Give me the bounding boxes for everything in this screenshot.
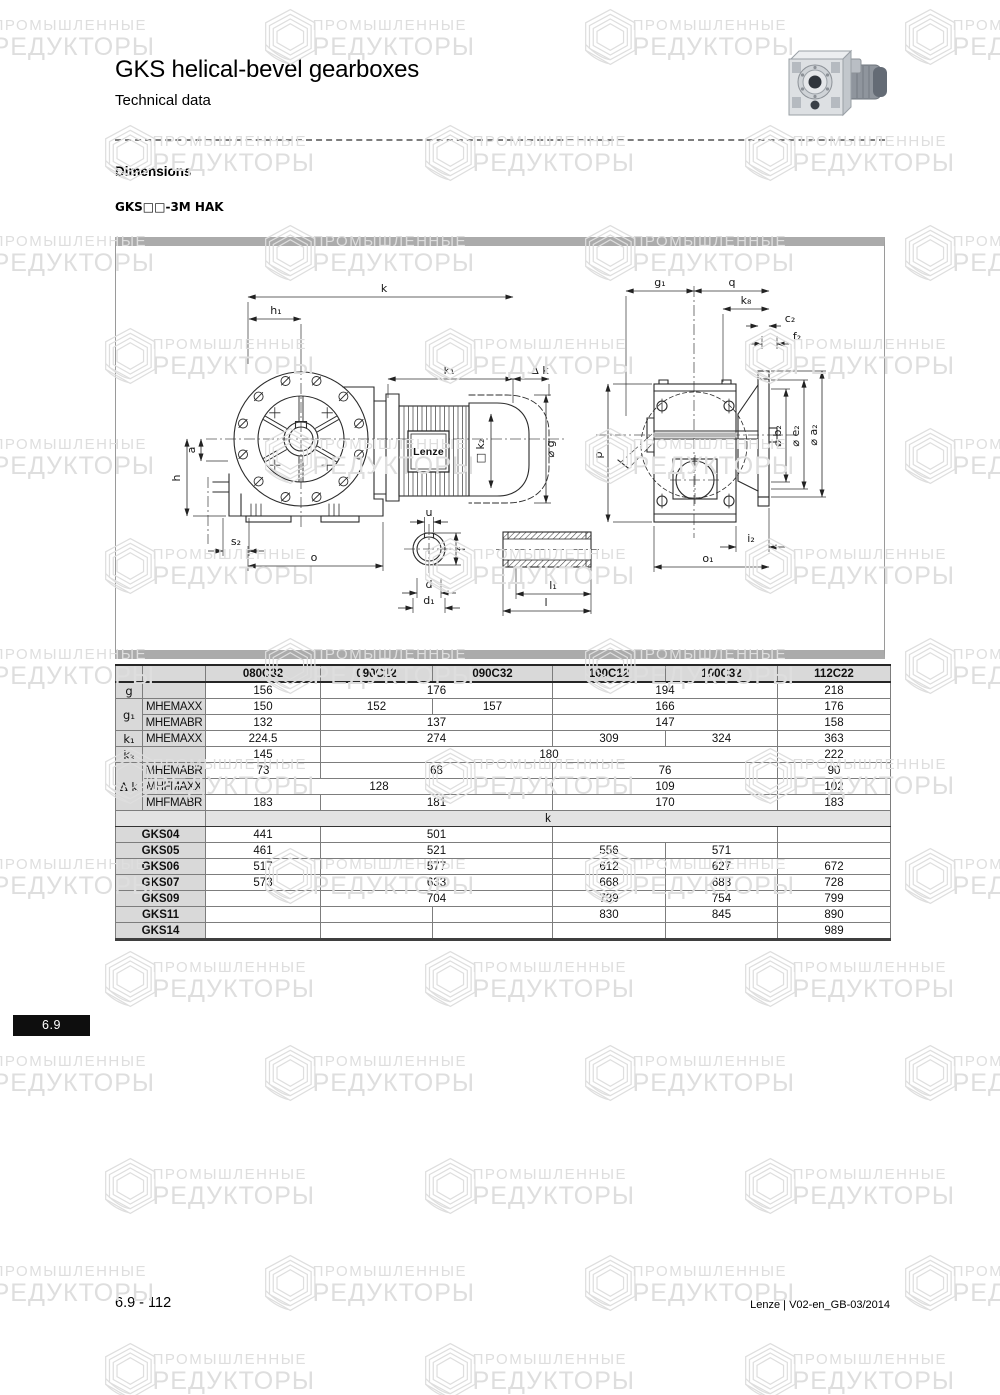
table-cell xyxy=(553,827,778,843)
watermark-line2: РЕДУКТОРЫ xyxy=(793,150,955,176)
table-cell xyxy=(143,747,206,763)
watermark-line2: РЕДУКТОРЫ xyxy=(0,1070,155,1096)
watermark-line1: ПРОМЫШЛЕННЫЕ xyxy=(953,1264,1000,1280)
column-header: 100C32 xyxy=(666,665,778,682)
watermark-text: ПРОМЫШЛЕННЫЕ РЕДУКТОРЫ xyxy=(0,18,155,60)
column-header: 080C32 xyxy=(206,665,321,682)
watermark-line1: ПРОМЫШЛЕННЫЕ xyxy=(953,1054,1000,1070)
table-cell: MHFMABR xyxy=(143,795,206,811)
watermark: ПРОМЫШЛЕННЫЕ РЕДУКТОРЫ xyxy=(900,845,1000,915)
watermark-line1: ПРОМЫШЛЕННЫЕ xyxy=(473,1352,635,1368)
dim-label-c2: c₂ xyxy=(785,312,795,325)
lenze-logo-text: Lenze xyxy=(413,446,444,458)
table-cell: 573 xyxy=(206,875,321,891)
table-cell: 830 xyxy=(553,907,666,923)
watermark-logo-icon xyxy=(740,948,801,1010)
table-cell: 180 xyxy=(321,747,778,763)
dim-label-a2: ⌀ a₂ xyxy=(807,424,820,445)
table-cell: 612 xyxy=(553,859,666,875)
watermark-line1: ПРОМЫШЛЕННЫЕ xyxy=(0,1054,155,1070)
watermark-text: ПРОМЫШЛЕННЫЕ РЕДУКТОРЫ xyxy=(0,1054,155,1096)
table-cell xyxy=(433,907,553,923)
watermark-line2: РЕДУКТОРЫ xyxy=(793,1183,955,1209)
watermark-logo-icon xyxy=(900,1252,961,1314)
table-cell: 461 xyxy=(206,843,321,859)
table-cell: MHEMABR xyxy=(143,715,206,731)
table-cell: 517 xyxy=(206,859,321,875)
table-cell: 739 xyxy=(553,891,666,907)
watermark-line2: РЕДУКТОРЫ xyxy=(633,1070,795,1096)
watermark-logo-icon xyxy=(100,1340,161,1395)
watermark-line2: РЕДУКТОРЫ xyxy=(953,873,1000,899)
watermark: ПРОМЫШЛЕННЫЕ РЕДУКТОРЫ xyxy=(260,1252,475,1322)
watermark-text: ПРОМЫШЛЕННЫЕ РЕДУКТОРЫ xyxy=(473,1352,635,1394)
dim-label-b2: ⌀ b₂ xyxy=(771,425,784,447)
watermark-line2: РЕДУКТОРЫ xyxy=(953,453,1000,479)
table-cell: 224.5 xyxy=(206,731,321,747)
watermark-line2: РЕДУКТОРЫ xyxy=(153,1368,315,1394)
side-view xyxy=(618,371,777,522)
table-cell: 109 xyxy=(553,779,778,795)
watermark-logo-icon xyxy=(0,1252,1,1314)
dim-label-g-dia: ⌀ g xyxy=(544,440,557,457)
watermark-line1: ПРОМЫШЛЕННЫЕ xyxy=(313,1054,475,1070)
watermark-text: ПРОМЫШЛЕННЫЕ РЕДУКТОРЫ xyxy=(953,647,1000,689)
dim-label-e2: ⌀ e₂ xyxy=(789,425,802,446)
table-cell xyxy=(778,827,891,843)
watermark-logo-icon xyxy=(740,122,801,184)
watermark-text: ПРОМЫШЛЕННЫЕ РЕДУКТОРЫ xyxy=(313,1264,475,1306)
watermark-line1: ПРОМЫШЛЕННЫЕ xyxy=(793,1352,955,1368)
table-cell: MHEMABR xyxy=(143,763,206,779)
row-label: GKS05 xyxy=(116,843,206,859)
dim-label-o1: o₁ xyxy=(702,552,713,565)
dim-label-k1: k₁ xyxy=(444,364,455,377)
table-cell: 728 xyxy=(778,875,891,891)
table-cell: g₁ xyxy=(116,699,143,731)
watermark: ПРОМЫШЛЕННЫЕ РЕДУКТОРЫ xyxy=(900,6,1000,76)
dim-label-o: o xyxy=(311,551,318,564)
watermark-text: ПРОМЫШЛЕННЫЕ РЕДУКТОРЫ xyxy=(953,437,1000,479)
watermark-text: ПРОМЫШЛЕННЫЕ РЕДУКТОРЫ xyxy=(313,1054,475,1096)
watermark-line1: ПРОМЫШЛЕННЫЕ xyxy=(953,647,1000,663)
watermark-line1: ПРОМЫШЛЕННЫЕ xyxy=(153,1167,315,1183)
watermark-text: ПРОМЫШЛЕННЫЕ РЕДУКТОРЫ xyxy=(953,1264,1000,1306)
table-cell: 132 xyxy=(206,715,321,731)
table-cell: k₂ xyxy=(116,747,143,763)
watermark-line2: РЕДУКТОРЫ xyxy=(793,1368,955,1394)
watermark-line1: ПРОМЫШЛЕННЫЕ xyxy=(153,960,315,976)
dim-label-q: q xyxy=(729,276,736,289)
watermark-line1: ПРОМЫШЛЕННЫЕ xyxy=(953,18,1000,34)
watermark-logo-icon xyxy=(580,1042,641,1104)
table-cell xyxy=(553,923,666,940)
table-cell: 90 xyxy=(778,763,891,779)
watermark-logo-icon xyxy=(260,1252,321,1314)
watermark-line1: ПРОМЫШЛЕННЫЕ xyxy=(633,18,795,34)
table-cell: 222 xyxy=(778,747,891,763)
watermark-text: ПРОМЫШЛЕННЫЕ РЕДУКТОРЫ xyxy=(953,234,1000,276)
watermark-text: ПРОМЫШЛЕННЫЕ РЕДУКТОРЫ xyxy=(313,18,475,60)
table-cell: 176 xyxy=(778,699,891,715)
table-cell xyxy=(206,923,321,940)
row-label: GKS11 xyxy=(116,907,206,923)
watermark-logo-icon xyxy=(740,1155,801,1217)
table-cell: 68 xyxy=(321,763,553,779)
table-cell: 577 xyxy=(321,859,553,875)
watermark-line1: ПРОМЫШЛЕННЫЕ xyxy=(793,960,955,976)
table-cell: 633 xyxy=(321,875,553,891)
watermark-line2: РЕДУКТОРЫ xyxy=(953,1070,1000,1096)
gearbox-product-image xyxy=(783,45,893,123)
table-cell: 147 xyxy=(553,715,778,731)
watermark-line2: РЕДУКТОРЫ xyxy=(313,1280,475,1306)
watermark: ПРОМЫШЛЕННЫЕ РЕДУКТОРЫ xyxy=(100,1340,315,1395)
watermark-line2: РЕДУКТОРЫ xyxy=(473,150,635,176)
dimensions-table: 080C32090C12090C32100C12100C32112C22g156… xyxy=(115,664,891,941)
technical-drawing: k h₁ k₁ Δ k ⌀ g □ k₂ Lenze a h s₂ o u f … xyxy=(116,246,884,650)
table-cell: 181 xyxy=(321,795,553,811)
dim-label-h: h xyxy=(170,474,183,481)
dim-label-d: d xyxy=(426,578,433,591)
dim-label-p: p xyxy=(592,451,605,458)
watermark-logo-icon xyxy=(0,222,1,284)
watermark: ПРОМЫШЛЕННЫЕ РЕДУКТОРЫ xyxy=(260,1042,475,1112)
dim-label-g1: g₁ xyxy=(654,276,665,289)
table-cell: 890 xyxy=(778,907,891,923)
page-title: GKS helical-bevel gearboxes xyxy=(115,56,419,84)
dim-label-i2: i₂ xyxy=(747,532,754,545)
watermark-logo-icon xyxy=(900,845,961,907)
table-cell: 166 xyxy=(553,699,778,715)
watermark-text: ПРОМЫШЛЕННЫЕ РЕДУКТОРЫ xyxy=(633,18,795,60)
table-cell: Δ k xyxy=(116,763,143,811)
watermark: ПРОМЫШЛЕННЫЕ РЕДУКТОРЫ xyxy=(100,122,315,192)
watermark-text: ПРОМЫШЛЕННЫЕ РЕДУКТОРЫ xyxy=(793,1167,955,1209)
watermark-logo-icon xyxy=(420,1155,481,1217)
watermark-line1: ПРОМЫШЛЕННЫЕ xyxy=(0,1264,155,1280)
table-cell xyxy=(321,923,433,940)
watermark-logo-icon xyxy=(0,1042,1,1104)
watermark-logo-icon xyxy=(900,1042,961,1104)
watermark-line1: ПРОМЫШЛЕННЫЕ xyxy=(473,134,635,150)
dim-label-h1: h₁ xyxy=(270,304,281,317)
watermark-logo-icon xyxy=(0,6,1,68)
table-cell xyxy=(433,923,553,940)
watermark: ПРОМЫШЛЕННЫЕ РЕДУКТОРЫ xyxy=(900,425,1000,495)
table-cell: MHEMAXX xyxy=(143,699,206,715)
table-cell: 183 xyxy=(778,795,891,811)
table-cell xyxy=(206,907,321,923)
column-header: 090C32 xyxy=(433,665,553,682)
table-cell: 170 xyxy=(553,795,778,811)
watermark-text: ПРОМЫШЛЕННЫЕ РЕДУКТОРЫ xyxy=(153,960,315,1002)
section-badge: 6.9 xyxy=(13,1015,90,1036)
watermark: ПРОМЫШЛЕННЫЕ РЕДУКТОРЫ xyxy=(580,6,795,76)
table-cell: 145 xyxy=(206,747,321,763)
watermark: ПРОМЫШЛЕННЫЕ РЕДУКТОРЫ xyxy=(420,1340,635,1395)
dim-label-u: u xyxy=(426,506,433,519)
watermark-logo-icon xyxy=(420,948,481,1010)
centerlines xyxy=(206,286,796,574)
catalog-page: GKS helical-bevel gearboxes Technical da… xyxy=(0,0,1000,1395)
watermark-line2: РЕДУКТОРЫ xyxy=(793,976,955,1002)
watermark-logo-icon xyxy=(100,1155,161,1217)
watermark: ПРОМЫШЛЕННЫЕ РЕДУКТОРЫ xyxy=(0,1252,155,1322)
table-cell: 668 xyxy=(553,875,666,891)
watermark-line1: ПРОМЫШЛЕННЫЕ xyxy=(953,234,1000,250)
watermark-logo-icon xyxy=(420,1340,481,1395)
dim-label-f: f xyxy=(455,546,468,551)
watermark: ПРОМЫШЛЕННЫЕ РЕДУКТОРЫ xyxy=(0,1042,155,1112)
variant-label: GKS□□-3M HAK xyxy=(115,200,224,214)
watermark-line1: ПРОМЫШЛЕННЫЕ xyxy=(953,857,1000,873)
table-cell: 274 xyxy=(321,731,553,747)
watermark-line2: РЕДУКТОРЫ xyxy=(153,1183,315,1209)
table-cell: MHFMAXX xyxy=(143,779,206,795)
watermark-line2: РЕДУКТОРЫ xyxy=(953,34,1000,60)
row-label: GKS09 xyxy=(116,891,206,907)
row-label: GKS06 xyxy=(116,859,206,875)
watermark-logo-icon xyxy=(260,1042,321,1104)
table-cell: 76 xyxy=(553,763,778,779)
watermark-logo-icon xyxy=(900,425,961,487)
watermark-logo-icon xyxy=(900,6,961,68)
column-header: 112C22 xyxy=(778,665,891,682)
table-cell: 157 xyxy=(433,699,553,715)
column-header: 090C12 xyxy=(321,665,433,682)
table-cell: k₁ xyxy=(116,731,143,747)
table-cell: 128 xyxy=(206,779,553,795)
watermark-line1: ПРОМЫШЛЕННЫЕ xyxy=(473,960,635,976)
watermark-line1: ПРОМЫШЛЕННЫЕ xyxy=(633,1264,795,1280)
watermark-line1: ПРОМЫШЛЕННЫЕ xyxy=(313,18,475,34)
table-cell: 150 xyxy=(206,699,321,715)
watermark-text: ПРОМЫШЛЕННЫЕ РЕДУКТОРЫ xyxy=(473,960,635,1002)
table-cell: 309 xyxy=(553,731,666,747)
watermark-line2: РЕДУКТОРЫ xyxy=(313,1070,475,1096)
section-heading: Dimensions xyxy=(115,164,192,179)
table-cell: 989 xyxy=(778,923,891,940)
table-cell: 627 xyxy=(666,859,778,875)
table-cell: 102 xyxy=(778,779,891,795)
watermark-text: ПРОМЫШЛЕННЫЕ РЕДУКТОРЫ xyxy=(473,1167,635,1209)
watermark-line1: ПРОМЫШЛЕННЫЕ xyxy=(0,18,155,34)
watermark-line2: РЕДУКТОРЫ xyxy=(953,1280,1000,1306)
row-label: GKS07 xyxy=(116,875,206,891)
table-cell: 501 xyxy=(321,827,553,843)
table-cell: 152 xyxy=(321,699,433,715)
table-cell xyxy=(321,907,433,923)
watermark-line1: ПРОМЫШЛЕННЫЕ xyxy=(953,437,1000,453)
watermark-line1: ПРОМЫШЛЕННЫЕ xyxy=(473,1167,635,1183)
table-cell: 683 xyxy=(666,875,778,891)
watermark-line2: РЕДУКТОРЫ xyxy=(953,250,1000,276)
watermark-line2: РЕДУКТОРЫ xyxy=(473,1368,635,1394)
watermark-text: ПРОМЫШЛЕННЫЕ РЕДУКТОРЫ xyxy=(153,1352,315,1394)
table-cell: 521 xyxy=(321,843,553,859)
watermark-logo-icon xyxy=(420,122,481,184)
column-header xyxy=(116,665,143,682)
watermark-line2: РЕДУКТОРЫ xyxy=(633,34,795,60)
watermark-line1: ПРОМЫШЛЕННЫЕ xyxy=(153,134,315,150)
watermark-logo-icon xyxy=(900,222,961,284)
table-cell xyxy=(666,923,778,940)
column-header xyxy=(143,665,206,682)
watermark: ПРОМЫШЛЕННЫЕ РЕДУКТОРЫ xyxy=(580,1252,795,1322)
drawing-frame: k h₁ k₁ Δ k ⌀ g □ k₂ Lenze a h s₂ o u f … xyxy=(115,237,885,659)
watermark: ПРОМЫШЛЕННЫЕ РЕДУКТОРЫ xyxy=(420,948,635,1018)
watermark-logo-icon xyxy=(740,1340,801,1395)
watermark: ПРОМЫШЛЕННЫЕ РЕДУКТОРЫ xyxy=(900,635,1000,705)
column-header: 100C12 xyxy=(553,665,666,682)
page-subtitle: Technical data xyxy=(115,92,211,109)
gearbox-housing-shape xyxy=(789,51,851,115)
table-cell: 704 xyxy=(321,891,553,907)
watermark-line1: ПРОМЫШЛЕННЫЕ xyxy=(153,1352,315,1368)
watermark-text: ПРОМЫШЛЕННЫЕ РЕДУКТОРЫ xyxy=(793,1352,955,1394)
watermark: ПРОМЫШЛЕННЫЕ РЕДУКТОРЫ xyxy=(740,122,955,192)
dim-label-l1: l₁ xyxy=(549,579,556,592)
table-cell: 571 xyxy=(666,843,778,859)
watermark-logo-icon xyxy=(100,948,161,1010)
table-cell: 799 xyxy=(778,891,891,907)
table-cell xyxy=(778,843,891,859)
table-cell: 672 xyxy=(778,859,891,875)
dim-label-s2: s₂ xyxy=(231,535,241,548)
dim-label-f2: f₂ xyxy=(793,330,801,343)
watermark-logo-icon xyxy=(900,635,961,697)
watermark-text: ПРОМЫШЛЕННЫЕ РЕДУКТОРЫ xyxy=(953,1054,1000,1096)
row-label: GKS14 xyxy=(116,923,206,940)
dashed-divider xyxy=(115,139,885,141)
table-cell: MHEMAXX xyxy=(143,731,206,747)
row-label: GKS04 xyxy=(116,827,206,843)
table-cell: g xyxy=(116,682,143,699)
watermark: ПРОМЫШЛЕННЫЕ РЕДУКТОРЫ xyxy=(420,122,635,192)
table-cell: 441 xyxy=(206,827,321,843)
watermark: ПРОМЫШЛЕННЫЕ РЕДУКТОРЫ xyxy=(100,948,315,1018)
footer-page-number: 6.9 - 112 xyxy=(115,1295,171,1311)
table-cell: 73 xyxy=(206,763,321,779)
dim-label-k: k xyxy=(381,282,388,295)
watermark: ПРОМЫШЛЕННЫЕ РЕДУКТОРЫ xyxy=(740,1155,955,1225)
watermark-logo-icon xyxy=(0,845,1,907)
watermark: ПРОМЫШЛЕННЫЕ РЕДУКТОРЫ xyxy=(900,222,1000,292)
table-cell: 324 xyxy=(666,731,778,747)
watermark: ПРОМЫШЛЕННЫЕ РЕДУКТОРЫ xyxy=(580,1042,795,1112)
front-view xyxy=(213,372,591,567)
table-cell xyxy=(143,682,206,699)
watermark: ПРОМЫШЛЕННЫЕ РЕДУКТОРЫ xyxy=(900,1252,1000,1322)
watermark-text: ПРОМЫШЛЕННЫЕ РЕДУКТОРЫ xyxy=(953,857,1000,899)
watermark-line1: ПРОМЫШЛЕННЫЕ xyxy=(793,1167,955,1183)
watermark-logo-icon xyxy=(580,6,641,68)
dim-label-k2: □ k₂ xyxy=(474,439,487,464)
dim-label-dk: Δ k xyxy=(531,364,549,377)
table-cell: 183 xyxy=(206,795,321,811)
watermark-text: ПРОМЫШЛЕННЫЕ РЕДУКТОРЫ xyxy=(953,18,1000,60)
table-cell: 137 xyxy=(321,715,553,731)
dim-label-k8: k₈ xyxy=(741,294,752,307)
dim-label-l: l xyxy=(544,596,547,609)
table-cell: 194 xyxy=(553,682,778,699)
table-cell: 156 xyxy=(206,682,321,699)
watermark-logo-icon xyxy=(0,425,1,487)
table-cell: 556 xyxy=(553,843,666,859)
watermark-logo-icon xyxy=(0,635,1,697)
table-cell: 158 xyxy=(778,715,891,731)
watermark: ПРОМЫШЛЕННЫЕ РЕДУКТОРЫ xyxy=(100,1155,315,1225)
watermark-line2: РЕДУКТОРЫ xyxy=(473,976,635,1002)
table-cell: 845 xyxy=(666,907,778,923)
watermark-text: ПРОМЫШЛЕННЫЕ РЕДУКТОРЫ xyxy=(633,1054,795,1096)
watermark-line1: ПРОМЫШЛЕННЫЕ xyxy=(793,134,955,150)
table-cell: 754 xyxy=(666,891,778,907)
watermark: ПРОМЫШЛЕННЫЕ РЕДУКТОРЫ xyxy=(900,1042,1000,1112)
table-cell: 363 xyxy=(778,731,891,747)
table-cell xyxy=(116,811,206,827)
watermark-line2: РЕДУКТОРЫ xyxy=(153,976,315,1002)
table-cell xyxy=(206,891,321,907)
watermark-line2: РЕДУКТОРЫ xyxy=(953,663,1000,689)
dim-label-d1: d₁ xyxy=(423,594,434,607)
watermark-text: ПРОМЫШЛЕННЫЕ РЕДУКТОРЫ xyxy=(793,960,955,1002)
watermark: ПРОМЫШЛЕННЫЕ РЕДУКТОРЫ xyxy=(420,1155,635,1225)
watermark-line1: ПРОМЫШЛЕННЫЕ xyxy=(633,1054,795,1070)
table-cell: 176 xyxy=(321,682,553,699)
watermark: ПРОМЫШЛЕННЫЕ РЕДУКТОРЫ xyxy=(740,948,955,1018)
dim-label-a: a xyxy=(185,447,198,454)
table-cell: k xyxy=(206,811,891,827)
watermark-line1: ПРОМЫШЛЕННЫЕ xyxy=(313,1264,475,1280)
table-cell: 218 xyxy=(778,682,891,699)
watermark-text: ПРОМЫШЛЕННЫЕ РЕДУКТОРЫ xyxy=(153,1167,315,1209)
watermark: ПРОМЫШЛЕННЫЕ РЕДУКТОРЫ xyxy=(740,1340,955,1395)
footer-doc-info: Lenze | V02-en_GB-03/2014 xyxy=(490,1299,890,1311)
watermark-line2: РЕДУКТОРЫ xyxy=(473,1183,635,1209)
